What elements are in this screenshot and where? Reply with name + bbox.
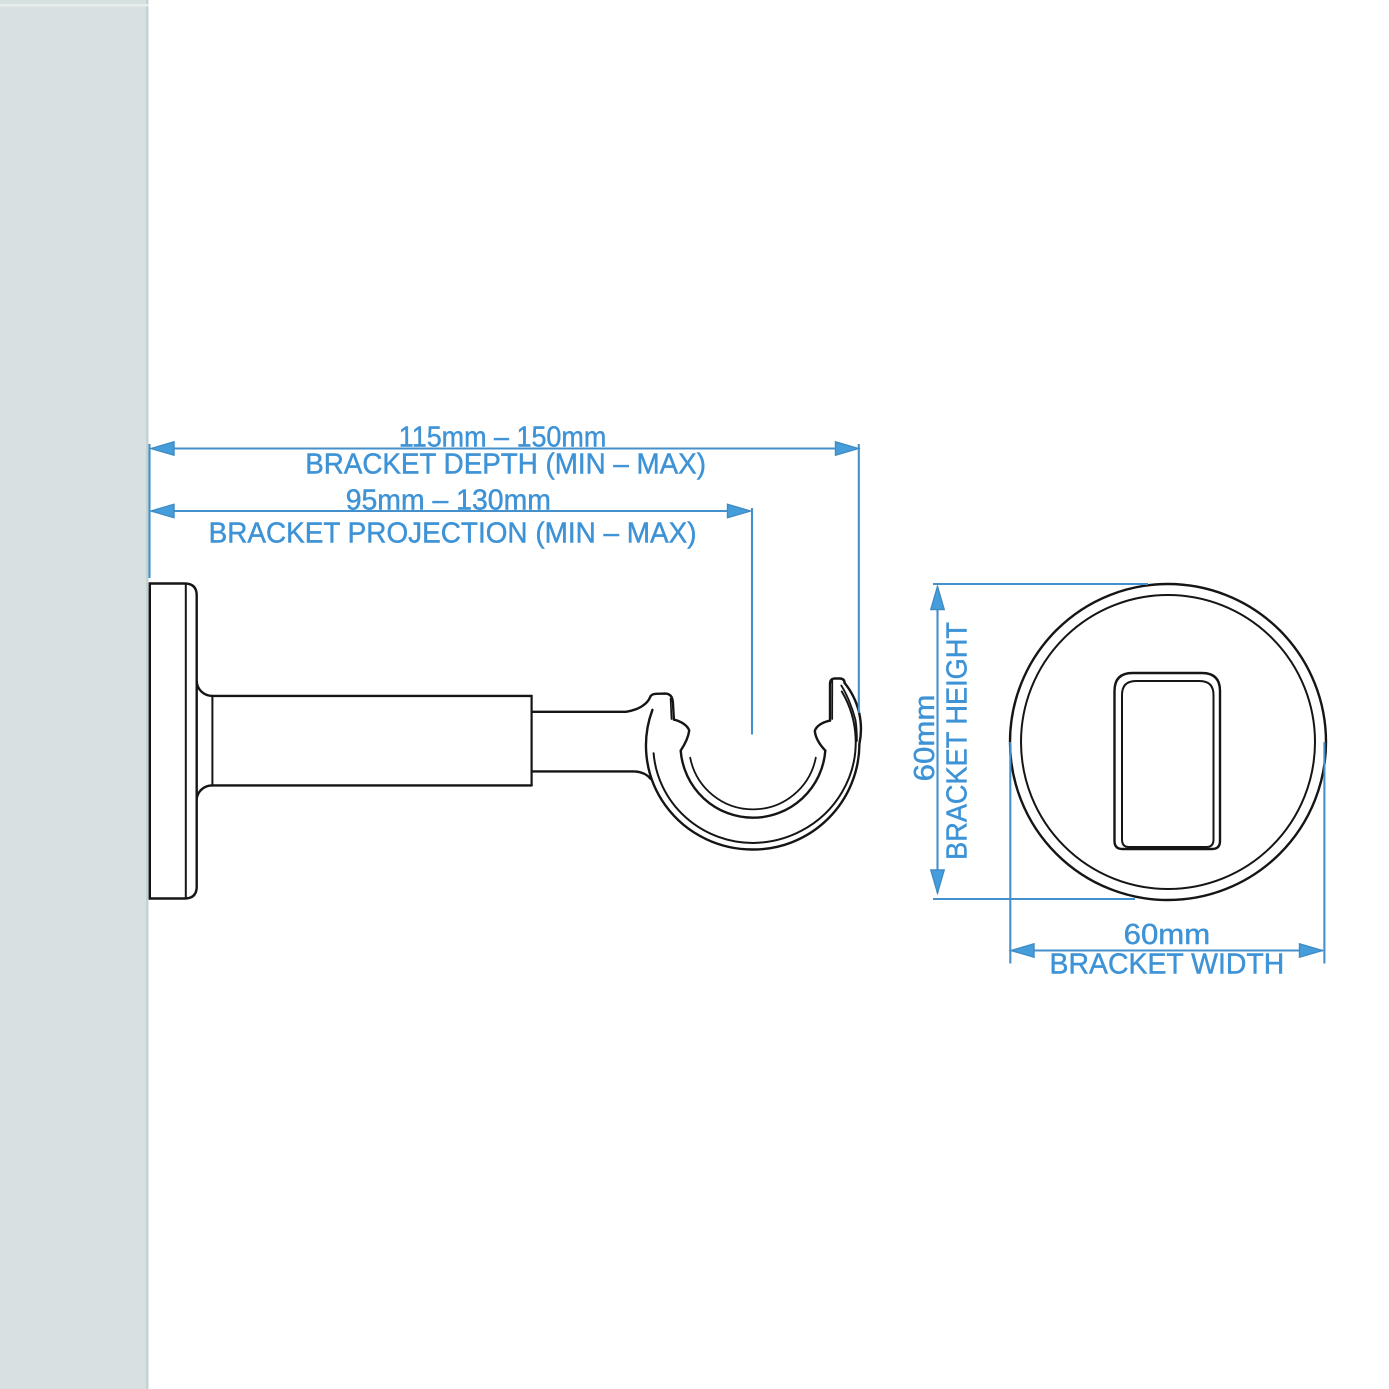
svg-text:BRACKET WIDTH: BRACKET WIDTH [1050,949,1285,981]
svg-text:60mm: 60mm [909,695,941,782]
svg-text:BRACKET PROJECTION (MIN – MAX): BRACKET PROJECTION (MIN – MAX) [209,517,697,549]
svg-text:60mm: 60mm [1124,919,1211,951]
svg-text:BRACKET DEPTH (MIN – MAX): BRACKET DEPTH (MIN – MAX) [305,449,706,481]
svg-text:95mm – 130mm: 95mm – 130mm [346,484,551,516]
svg-text:BRACKET HEIGHT: BRACKET HEIGHT [942,622,974,860]
